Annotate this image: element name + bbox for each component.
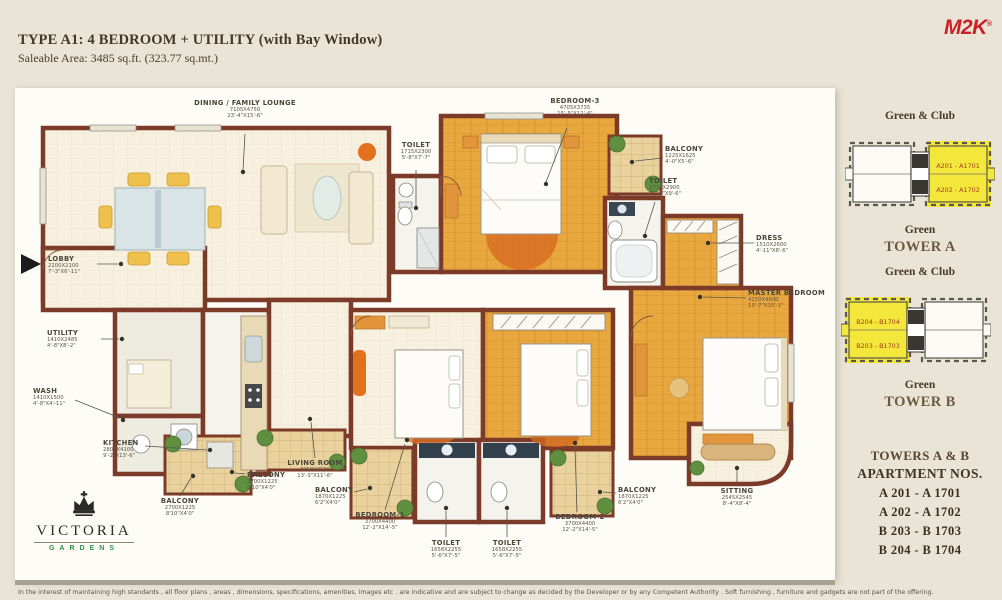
logo-name: VICTORIA	[28, 523, 140, 540]
tower-b-unit-2: B203 - B1703	[856, 342, 900, 350]
apartment-range: A 202 - A 1702	[838, 505, 1002, 520]
logo-rule	[34, 542, 134, 543]
room-label-bedroom-1: BEDROOM-1 3700X4400 12'-2"X14'-5"	[355, 512, 404, 531]
logo-subname: GARDENS	[28, 545, 140, 552]
apartments-heading-2: APARTMENT NOS.	[838, 466, 1002, 482]
tower-a-unit-2: A202 - A1702	[936, 186, 980, 194]
apartment-range: A 201 - A 1701	[838, 486, 1002, 501]
room-label-lobby: LOBBY 2200X2100 7'-3"X6'-11"	[48, 256, 80, 275]
room-label-bedroom-3: BEDROOM-3 4705X3735 15'-5"X12'-4"	[550, 98, 599, 117]
tower-a-bottom-label: Green	[838, 224, 1002, 236]
room-label-master-bedroom: MASTER BEDROOM 4150X4600 13'-7"X15'-1"	[748, 290, 825, 309]
room-label-bedroom-2: BEDROOM-2 3700X4400 12'-2"X14'-5"	[555, 514, 604, 533]
room-label-balcony-bed2: BALCONY 1870X1225 6'2"X4'0"	[618, 487, 656, 506]
room-label-kitchen: KITCHEN 2800X4100 9'-2"X13'-6"	[103, 440, 139, 459]
room-label-dining: DINING / FAMILY LOUNGE 7105X4750 23'-4"X…	[194, 100, 296, 119]
disclaimer-text: In the interest of maintaining high stan…	[18, 589, 934, 596]
room-label-dress: DRESS 1510X2600 4'-11"X8'-6"	[756, 235, 788, 254]
room-label-wash: WASH 1410X1500 4'-8"X4'-11"	[33, 388, 65, 407]
brochure-page: { "header": { "title": "TYPE A1: 4 BEDRO…	[0, 0, 1002, 600]
apartment-numbers: TOWERS A & B APARTMENT NOS. A 201 - A 17…	[838, 448, 1002, 558]
apartments-heading-1: TOWERS A & B	[838, 448, 1002, 464]
room-label-balcony-bed1: BALCONY 1870X1225 6'2"X4'0"	[315, 487, 353, 506]
saleable-area: Saleable Area: 3485 sq.ft. (323.77 sq.mt…	[18, 51, 218, 66]
room-label-toilet-master: TOILET 2730X2900 8'-11"X9'-6"	[649, 178, 681, 197]
room-label-balcony-tr: BALCONY 1225X1625 4'-0"X5'-6"	[665, 146, 703, 165]
tower-b-unit-1: B204 - B1704	[856, 318, 900, 326]
room-living	[269, 300, 351, 436]
tower-a-diagram: A201 - A1701 A202 - A1702	[845, 128, 995, 220]
entry-arrow-icon	[21, 254, 41, 274]
room-label-toilet-2: TOILET 1658X2255 5'-6"X7'-5"	[492, 540, 523, 559]
tower-b-title: TOWER B	[838, 394, 1002, 411]
room-label-toilet-1: TOILET 1658X2255 5'-6"X7'-5"	[431, 540, 462, 559]
tower-a-title: TOWER A	[838, 239, 1002, 256]
sitting-sofa	[701, 444, 775, 460]
page-title: TYPE A1: 4 BEDROOM + UTILITY (with Bay W…	[18, 32, 382, 49]
room-label-toilet-bed3: TOILET 1715X2300 5'-8"X7'-7"	[401, 142, 432, 161]
room-label-utility: UTILITY 1410X2485 4'-8"X8'-2"	[47, 330, 78, 349]
sidebar: Green & Club A201 - A1701 A202 - A1702 G…	[838, 0, 1002, 600]
room-label-balcony-kitchen: BALCONY 2700X1225 8'10"X4'0"	[161, 498, 199, 517]
crown-icon	[69, 490, 99, 516]
tower-a-top-label: Green & Club	[838, 110, 1002, 122]
tower-b-diagram: B204 - B1704 B203 - B1703	[841, 284, 991, 376]
victoria-gardens-logo: VICTORIA GARDENS	[28, 490, 140, 552]
apartment-range: B 204 - B 1704	[838, 543, 1002, 558]
tower-a-unit-1: A201 - A1701	[936, 162, 980, 170]
room-label-sitting: SITTING 2545X2545 8'-4"X8'-4"	[721, 488, 754, 507]
room-label-living-room: LIVING ROOM 4050X3500 13'-3"X11'-6"	[287, 460, 342, 479]
tower-b-top-label: Green & Club	[838, 266, 1002, 278]
room-label-balcony-living: BALCONY 2700X1225 8'10"X4'0"	[247, 472, 285, 491]
apartment-range: B 203 - B 1703	[838, 524, 1002, 539]
tower-b-bottom-label: Green	[838, 379, 1002, 391]
